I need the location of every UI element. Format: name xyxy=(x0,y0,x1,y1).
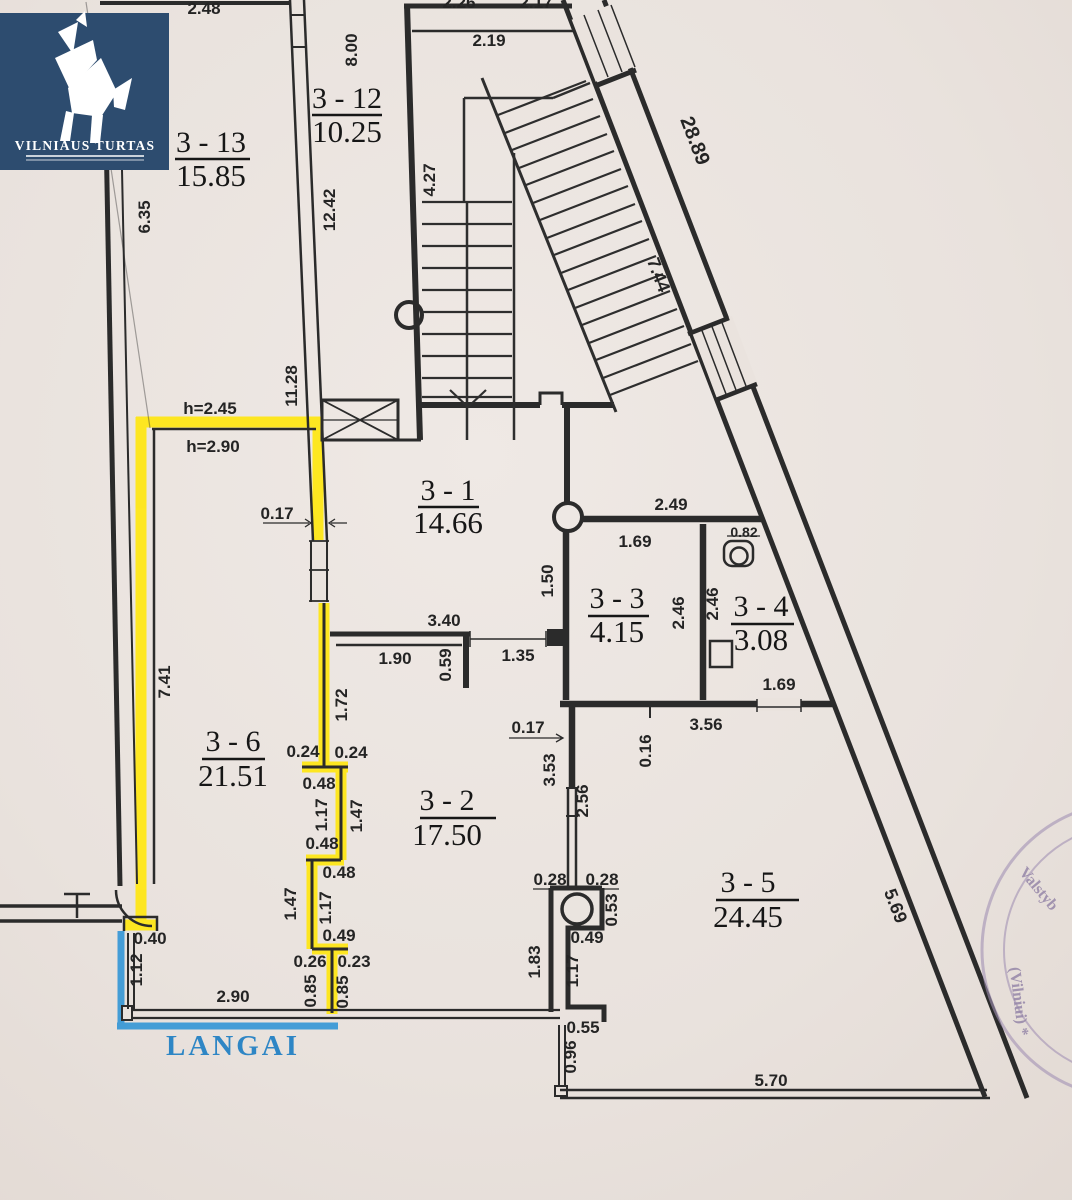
dim-label: 0.59 xyxy=(436,648,455,681)
dim-label: 2.90 xyxy=(216,987,249,1006)
room-number-label: 3 - 5 xyxy=(721,866,776,899)
dim-label: 0.85 xyxy=(333,975,352,1008)
dim-label: 1.69 xyxy=(762,675,795,694)
dim-label: 2.48 xyxy=(187,0,220,18)
room-area-label: 21.51 xyxy=(198,758,268,793)
dim-label: 1.47 xyxy=(281,887,300,920)
dim-label: 0.40 xyxy=(133,929,166,948)
dim-label: 11.28 xyxy=(282,365,301,407)
dim-label: 0.24 xyxy=(334,743,368,762)
dim-label: 0.23 xyxy=(337,952,370,971)
dim-label: 2.17 xyxy=(519,0,552,12)
dim-label: 1.72 xyxy=(332,688,351,721)
room-number-label: 3 - 3 xyxy=(590,582,645,615)
dim-label: 0.48 xyxy=(302,774,335,793)
dim-label: 0.16 xyxy=(636,734,655,767)
logo: VILNIAUS TURTAS xyxy=(0,11,169,170)
dim-label: 0.17 xyxy=(511,718,544,737)
dim-label: 1.17 xyxy=(312,798,331,831)
floor-plan-drawing: Valstyb (Vilniui) * 3 - 1315.853 - 1210.… xyxy=(0,0,1072,1200)
room-area-label: 24.45 xyxy=(713,899,783,934)
dim-label: 5.70 xyxy=(754,1071,787,1090)
dim-label: 2.46 xyxy=(669,596,688,629)
dim-label: 0.24 xyxy=(286,742,320,761)
dim-label: 1.17 xyxy=(563,954,582,987)
dim-label: 1.69 xyxy=(618,532,651,551)
dim-label: h=2.90 xyxy=(186,437,239,456)
dim-label: 0.49 xyxy=(322,926,355,945)
dim-label: 0.53 xyxy=(602,893,621,926)
room-area-label: 14.66 xyxy=(413,505,483,540)
dim-label: 6.35 xyxy=(135,200,154,233)
dim-label: 3.53 xyxy=(540,753,559,786)
dim-label: 0.96 xyxy=(561,1040,580,1073)
logo-title: VILNIAUS TURTAS xyxy=(15,138,155,153)
dim-label: 0.17 xyxy=(260,504,293,523)
floor-plan-scan: Valstyb (Vilniui) * 3 - 1315.853 - 1210.… xyxy=(0,0,1072,1200)
dim-label: 2.46 xyxy=(703,587,722,620)
dim-label: 3.40 xyxy=(427,611,460,630)
room-number-label: 3 - 13 xyxy=(176,126,246,159)
dim-label: 8.00 xyxy=(342,33,361,66)
dim-label: 0.26 xyxy=(293,952,326,971)
dim-label: 1.90 xyxy=(378,649,411,668)
room-area-label: 10.25 xyxy=(312,114,382,149)
dim-label: 1.47 xyxy=(347,799,366,832)
dim-label: 2.56 xyxy=(573,784,592,817)
dim-label: 0.48 xyxy=(305,834,338,853)
dim-label: 0.28 xyxy=(585,870,618,889)
dim-label: 0.82 xyxy=(730,524,757,540)
dim-label: 0.55 xyxy=(566,1018,599,1037)
dim-label: 2.19 xyxy=(472,31,505,50)
room-area-label: 15.85 xyxy=(176,158,246,193)
room-area-label: 3.08 xyxy=(734,622,788,657)
room-number-label: 3 - 12 xyxy=(312,82,382,115)
dim-label: h=2.45 xyxy=(183,399,236,418)
dim-label: 12.42 xyxy=(320,189,339,232)
langai-label: LANGAI xyxy=(166,1030,300,1062)
dim-label: 1.83 xyxy=(525,945,544,978)
room-number-label: 3 - 1 xyxy=(421,474,476,507)
dim-label: 0.85 xyxy=(301,974,320,1007)
dim-label: 2.49 xyxy=(654,495,687,514)
room-number-label: 3 - 2 xyxy=(420,784,475,817)
dim-label: 4.27 xyxy=(420,163,439,196)
room-area-label: 17.50 xyxy=(412,817,482,852)
dim-label: 0.49 xyxy=(570,928,603,947)
dim-label: 3.56 xyxy=(689,715,722,734)
room-number-label: 3 - 4 xyxy=(734,590,789,623)
dim-label: 0.28 xyxy=(533,870,566,889)
dim-label: 1.35 xyxy=(501,646,534,665)
dim-label: 1.12 xyxy=(127,953,146,986)
dim-label: 7.41 xyxy=(155,665,174,698)
dim-label: 1.50 xyxy=(538,564,557,597)
room-area-label: 4.15 xyxy=(590,614,644,649)
dim-label: 2.26 xyxy=(442,0,475,12)
room-number-label: 3 - 6 xyxy=(206,725,261,758)
dim-label: 0.48 xyxy=(322,863,355,882)
dim-label: 1.17 xyxy=(316,891,335,924)
